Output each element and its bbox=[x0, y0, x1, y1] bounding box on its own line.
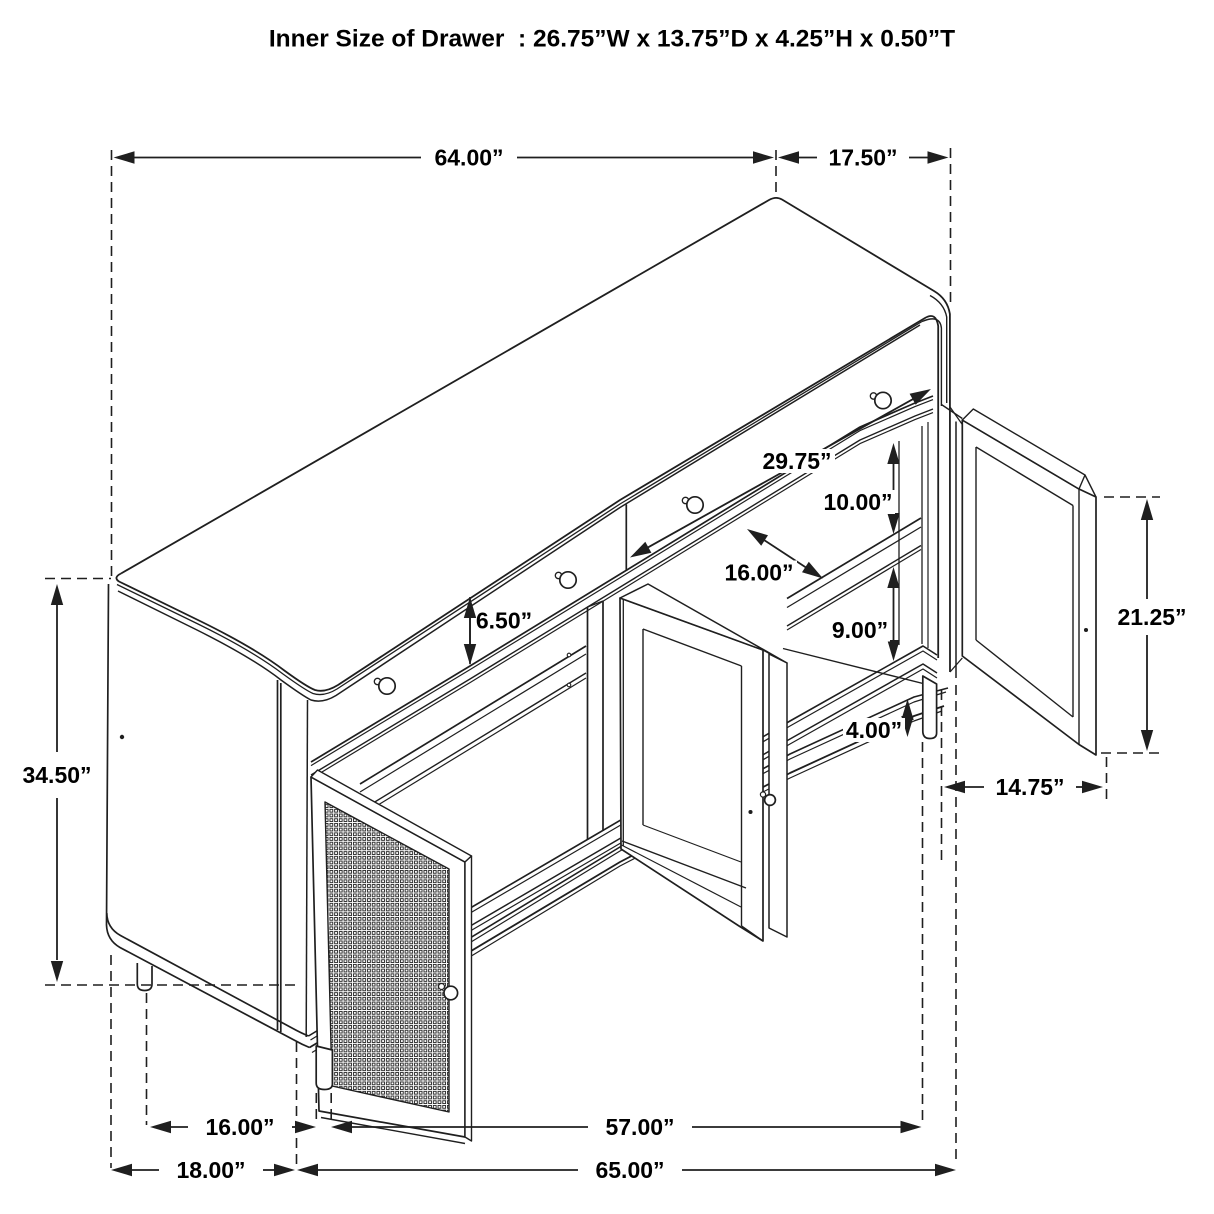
svg-text:9.00”: 9.00” bbox=[832, 617, 888, 643]
svg-text:64.00”: 64.00” bbox=[434, 145, 503, 171]
svg-text:10.00”: 10.00” bbox=[823, 489, 892, 515]
svg-text:18.00”: 18.00” bbox=[176, 1157, 245, 1183]
svg-text:4.00”: 4.00” bbox=[846, 717, 902, 743]
svg-text:16.00”: 16.00” bbox=[205, 1114, 274, 1140]
svg-text:17.50”: 17.50” bbox=[828, 145, 897, 171]
svg-text:21.25”: 21.25” bbox=[1117, 604, 1186, 630]
svg-text:16.00”: 16.00” bbox=[724, 560, 793, 586]
svg-text:29.75”: 29.75” bbox=[762, 448, 831, 474]
svg-text:34.50”: 34.50” bbox=[22, 762, 91, 788]
svg-text:Inner Size of Drawer : 26.75”: Inner Size of Drawer : 26.75”W x 13.75”D… bbox=[269, 26, 955, 53]
svg-text:6.50”: 6.50” bbox=[476, 608, 532, 634]
svg-text:57.00”: 57.00” bbox=[605, 1114, 674, 1140]
svg-text:65.00”: 65.00” bbox=[595, 1157, 664, 1183]
svg-text:14.75”: 14.75” bbox=[995, 774, 1064, 800]
